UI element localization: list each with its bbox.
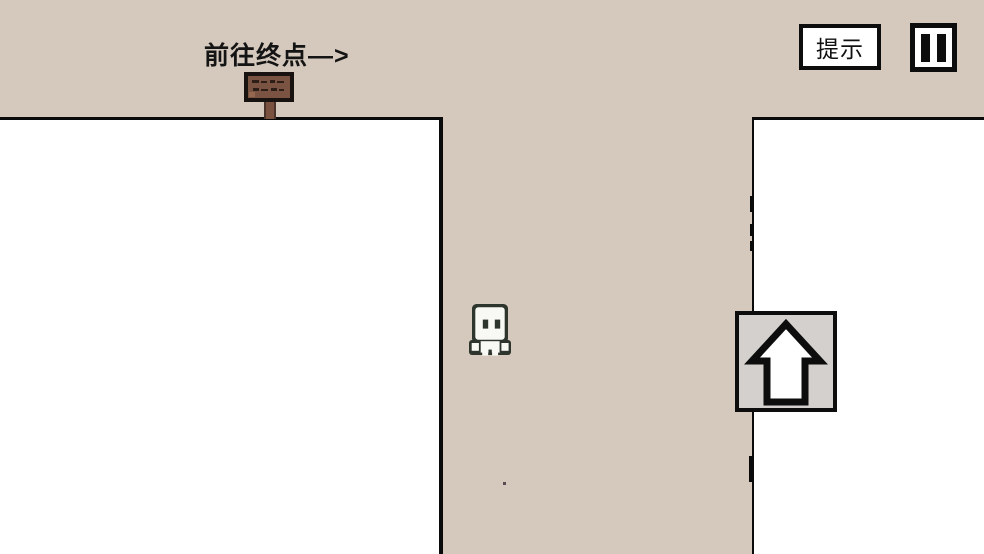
game-scene: 前往终点—> 提示 [0, 0, 984, 554]
wall-border-dash [750, 224, 754, 236]
floor-speck [503, 482, 506, 485]
up-arrow-icon [739, 315, 833, 408]
hint-button[interactable]: 提示 [799, 24, 881, 70]
pause-icon [921, 34, 946, 62]
pause-button[interactable] [910, 23, 957, 72]
wall-border-dash [750, 241, 754, 251]
wall-border-dash [750, 196, 754, 212]
wall-left [0, 117, 443, 554]
instruction-text: 前往终点—> [204, 36, 350, 72]
wall-border-dash [749, 456, 754, 482]
player-ghost-icon [466, 304, 514, 358]
wooden-signpost-icon [244, 72, 294, 119]
up-arrow-tile[interactable] [735, 311, 837, 412]
